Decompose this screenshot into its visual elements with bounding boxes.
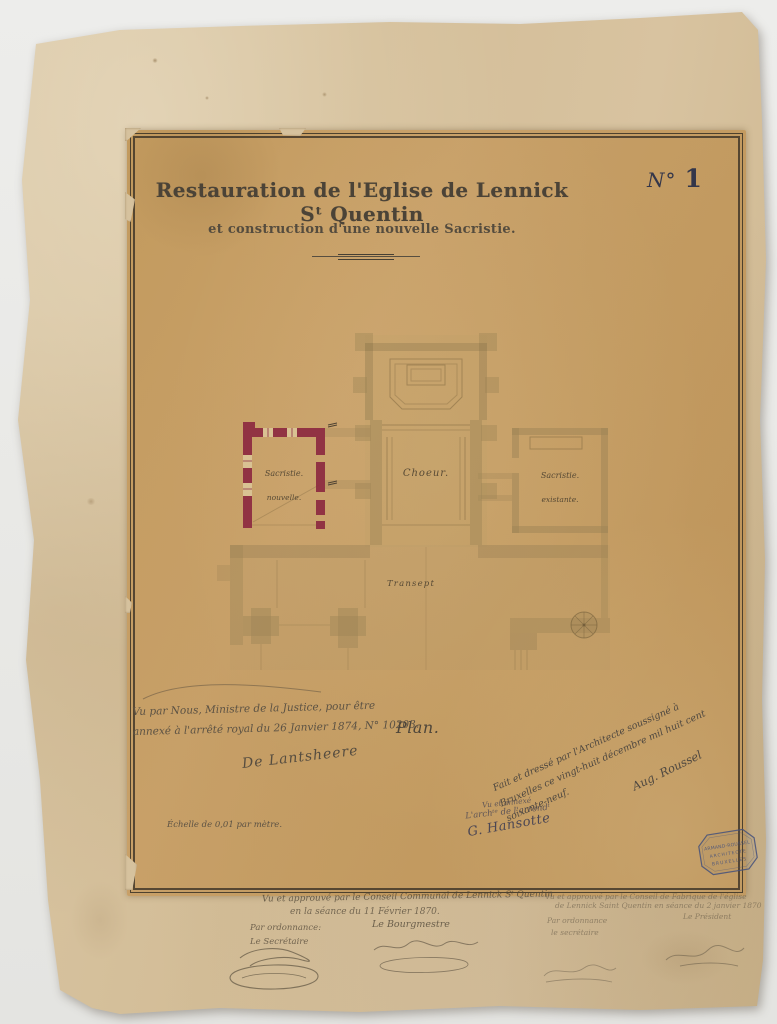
label-new-sacristy-2: nouvelle. [267,493,301,502]
plan-caption: Plan. [396,718,439,737]
label-choir: Choeur. [403,468,449,479]
floor-plan: Choeur. Sacristie. nouvelle. Sacristie. … [215,325,635,670]
fabrique-president: Le Président [683,912,731,921]
mount-shadow: Restauration de l'Eglise de Lennick Sᵗ Q… [0,0,777,1024]
spiral-stair [571,612,597,638]
mount-paper: Restauration de l'Eglise de Lennick Sᵗ Q… [0,0,777,1024]
document-subtitle: et construction d'une nouvelle Sacristie… [147,222,577,237]
sheet-number: N°1 [647,164,702,193]
plan-wash [365,335,487,547]
title-rule [312,254,420,258]
stain-spot [322,92,327,97]
secretary-signature-flourish [222,944,326,998]
stain-smudge [70,880,130,960]
stain-spot [86,498,96,505]
rule-thick-line [338,254,394,260]
communal-council-line2: en la séance du 11 Février 1870. [290,907,440,917]
label-new-sacristy-1: Sacristie. [265,469,303,478]
plan-wash [230,545,610,670]
architect-stamp: ARMAND-ROUSSEL ARCHITECTE BRUXELLES [695,826,761,879]
fabrique-line1: Vu et approuvé par le Conseil de Fabriqu… [545,892,777,901]
scale-note: Échelle de 0,01 par mètre. [167,820,282,830]
burgomaster-signature [366,936,486,980]
fabrique-signature-row: Par ordonnance le secrétaire Le Présiden… [545,910,777,940]
label-existing-sacristy-2: existante. [541,495,578,504]
fabrique-secretary-signature [540,958,620,990]
sheet-number-value: 1 [685,164,702,193]
label-transept: Transept [387,579,435,589]
fabrique-by-order: Par ordonnance [547,916,607,925]
sheet-number-prefix: N° [647,168,677,192]
scanned-archive-drawing: Restauration de l'Eglise de Lennick Sᵗ Q… [0,0,777,1024]
stain-spot [205,96,209,100]
minister-note-line1: Vu par Nous, Ministre de la Justice, pou… [132,700,375,718]
church-council-note: Vu et approuvé par le Conseil de Fabriqu… [545,892,777,940]
by-order-label: Par ordonnance: [250,923,321,933]
stain-spot [152,58,158,63]
fabrique-line2: de Lennick Saint Quentin en séance du 2 … [555,901,777,910]
fabrique-secretary: le secrétaire [551,928,599,937]
drawing-sheet: Restauration de l'Eglise de Lennick Sᵗ Q… [127,130,746,896]
document-title: Restauration de l'Eglise de Lennick Sᵗ Q… [147,178,577,226]
label-existing-sacristy-1: Sacristie. [541,471,579,480]
burgomaster-label: Le Bourgmestre [372,919,450,930]
president-signature [660,940,750,974]
